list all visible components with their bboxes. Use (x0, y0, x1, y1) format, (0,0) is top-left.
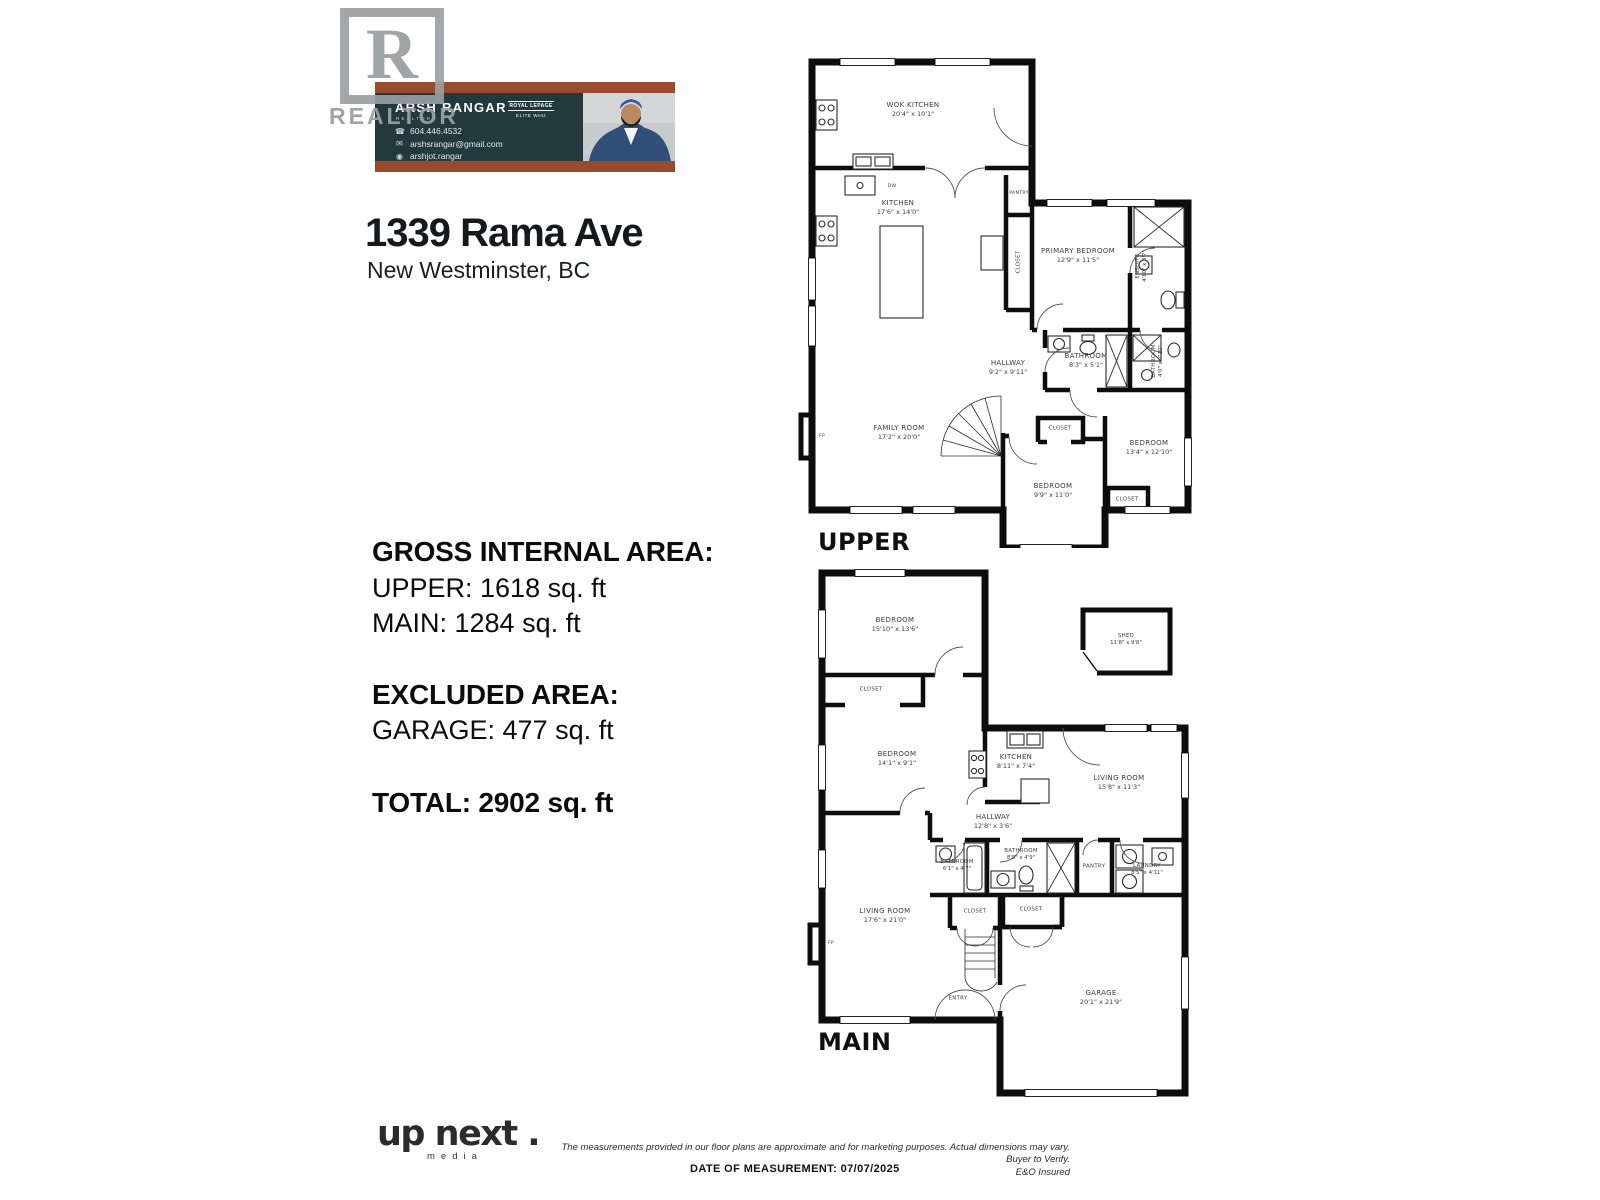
room-label-bedroom-main-2: BEDROOM 14'1" x 9'1" (878, 750, 917, 768)
room-label-bathroom: BATHROOM 8'3" x 5'1" (1065, 352, 1108, 370)
room-label-garage: GARAGE 20'1" x 21'9" (1080, 989, 1122, 1007)
label-fireplace: FP (819, 434, 825, 440)
gross-area-main: MAIN: 1284 sq. ft (372, 608, 581, 639)
room-label-family-room: FAMILY ROOM 17'2" x 20'0" (874, 424, 925, 442)
agent-contacts: ☎ 604.446.4532 ✉ arshsrangar@gmail.com ◉… (395, 126, 503, 161)
agent-photo (583, 93, 675, 161)
main-staircase (965, 929, 997, 991)
brokerage-logo: ROYAL LEPAGE ELITE West (508, 101, 554, 118)
realtor-logo-label: REALTOR (329, 103, 459, 130)
date-of-measurement: DATE OF MEASUREMENT: 07/07/2025 (690, 1163, 900, 1175)
room-label-bathroom-main-2: BATHROOM 8'9" x 4'9" (1004, 848, 1038, 862)
room-label-hallway: HALLWAY 9'2" x 9'11" (989, 359, 1027, 377)
realtor-r-letter: R (366, 18, 418, 90)
gross-area-upper: UPPER: 1618 sq. ft (372, 573, 606, 604)
room-label-bathroom-2: BATHROOM 4'0" x 7'10" (1151, 344, 1165, 378)
property-address: 1339 Rama Ave (365, 211, 643, 256)
agent-photo-illustration (583, 93, 675, 161)
realtor-logo: R (340, 8, 444, 104)
room-label-closet-bedroom: CLOSET (1116, 496, 1139, 503)
room-label-bedroom: BEDROOM 9'9" x 11'0" (1034, 482, 1073, 500)
upper-doors (925, 108, 1162, 464)
room-label-closet: CLOSET (1015, 251, 1022, 274)
brokerage-office: ELITE West (508, 113, 554, 118)
room-label-bedroom-main: BEDROOM 15'10" x 13'6" (872, 616, 918, 634)
curved-staircase (941, 396, 1001, 456)
brokerage-name: ROYAL LEPAGE (508, 101, 554, 111)
main-floor-label: MAIN (818, 1028, 891, 1056)
room-label-kitchen-main: KITCHEN 8'11" x 7'4" (997, 753, 1035, 771)
upnext-media-logo: up next . media (377, 1114, 539, 1162)
room-label-bathroom-main-1: BATHROOM 6'1" x 4'7" (940, 859, 974, 873)
agent-email-row: ✉ arshsrangar@gmail.com (395, 139, 503, 149)
room-label-pantry: PANTRY (1009, 191, 1028, 197)
room-label-closet-main-1: CLOSET (860, 686, 883, 693)
room-label-primary-bedroom: PRIMARY BEDROOM 12'9" x 11'5" (1041, 247, 1115, 265)
room-label-living-room: LIVING ROOM 15'8" x 11'3" (1094, 774, 1145, 792)
instagram-icon: ◉ (395, 152, 404, 161)
excluded-area-title: EXCLUDED AREA: (372, 679, 619, 711)
upnext-logo-text: up next . (377, 1114, 539, 1154)
room-label-wok-kitchen: WOK KITCHEN 20'4" x 10'1" (887, 101, 940, 119)
banner-bottom-bar (375, 161, 675, 172)
room-label-closet-main-2: CLOSET (964, 908, 987, 915)
upper-floor-label: UPPER (818, 528, 910, 556)
room-label-shed: SHED 11'8" x 9'8" (1110, 633, 1142, 647)
room-label-laundry: LAUNDRY 8'5" x 4'11" (1131, 863, 1163, 877)
main-floor-plan: BEDROOM 15'10" x 13'6" CLOSET BEDROOM 14… (795, 555, 1195, 1100)
upper-windows (809, 59, 1192, 549)
mail-icon: ✉ (395, 139, 404, 148)
room-label-kitchen: KITCHEN 17'6" x 14'0" (877, 199, 919, 217)
room-label-closet-main-3: CLOSET (1020, 906, 1043, 913)
room-label-closet-hall: CLOSET (1049, 425, 1072, 432)
agent-email: arshsrangar@gmail.com (410, 139, 503, 149)
room-label-pantry-main: PANTRY (1083, 863, 1105, 870)
floor-plan-flyer: R REALTOR ARSH RANGAR REALTOR® ROYAL LEP… (0, 0, 1600, 1200)
upper-floor-plan: WOK KITCHEN 20'4" x 10'1" KITCHEN 17'6" … (795, 48, 1195, 548)
upper-floor-plan-drawing (795, 48, 1195, 548)
label-fireplace-main: FP (828, 941, 834, 947)
room-label-ensuite: ENSUITE 4'10" x 8'7" (1135, 250, 1149, 282)
room-label-bedroom-2: BEDROOM 13'4" x 12'10" (1126, 439, 1172, 457)
room-label-living-room-2: LIVING ROOM 17'6" x 21'0" (860, 907, 911, 925)
agent-instagram-row: ◉ arshjot.rangar (395, 151, 503, 161)
property-city: New Westminster, BC (367, 257, 590, 284)
total-area: TOTAL: 2902 sq. ft (372, 787, 613, 819)
agent-instagram: arshjot.rangar (410, 151, 462, 161)
upper-interior-walls (812, 168, 1188, 545)
label-dishwasher: DW (888, 184, 897, 190)
gross-area-title: GROSS INTERNAL AREA: (372, 536, 713, 568)
room-label-hallway-main: HALLWAY 12'8" x 3'6" (974, 813, 1012, 831)
main-doors (900, 647, 1143, 1020)
excluded-area-garage: GARAGE: 477 sq. ft (372, 715, 614, 746)
room-label-entry: ENTRY (949, 995, 968, 1002)
